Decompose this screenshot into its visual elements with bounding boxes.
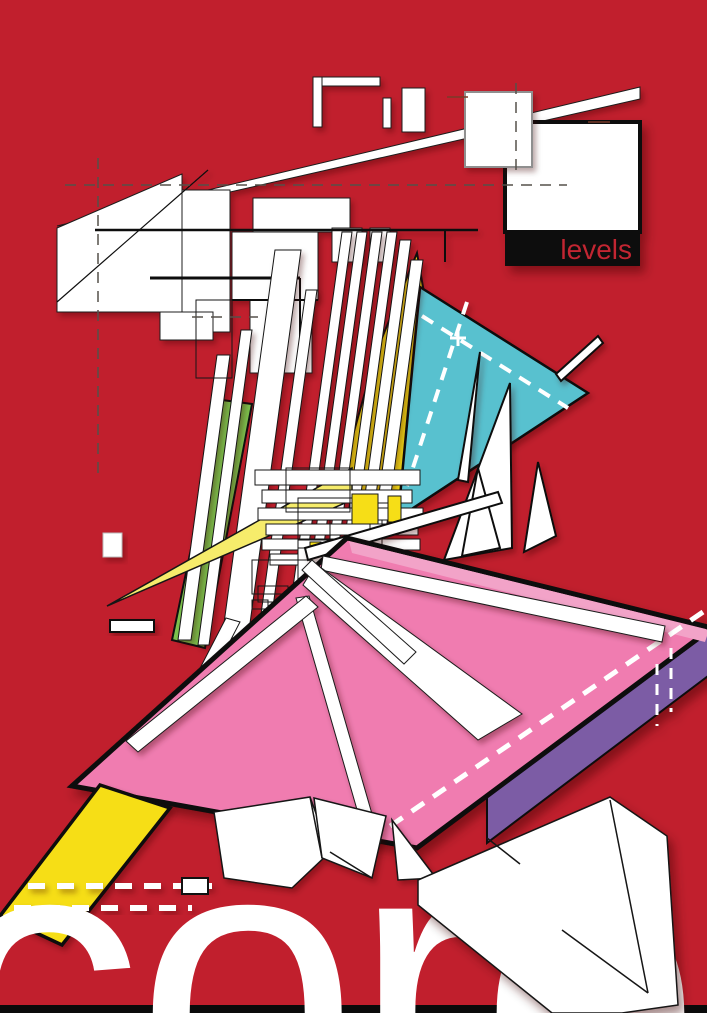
block (253, 198, 350, 232)
grid-yellow-cell (352, 494, 378, 524)
gray-border-square (465, 92, 532, 167)
poster: levels (0, 0, 707, 1013)
block (160, 312, 213, 340)
small-strip (383, 98, 391, 128)
block (182, 190, 230, 332)
small-white-square (103, 533, 122, 557)
bracket-bar (313, 77, 380, 86)
grid-yellow-cell (388, 496, 401, 522)
grid-bar (255, 470, 420, 485)
levels-label: levels (560, 234, 632, 265)
bracket-leg (313, 77, 322, 127)
small-white-bar (110, 620, 154, 632)
block (402, 88, 425, 132)
